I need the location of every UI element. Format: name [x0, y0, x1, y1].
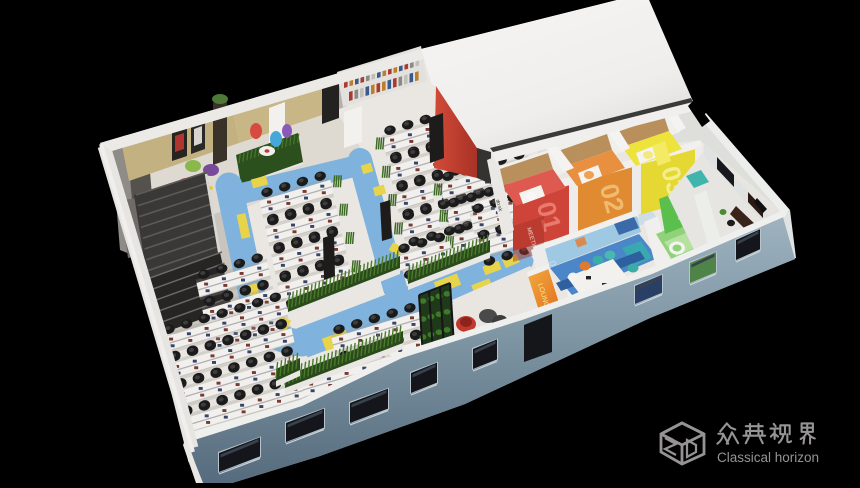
svg-text:Classical horizon: Classical horizon: [717, 450, 819, 465]
